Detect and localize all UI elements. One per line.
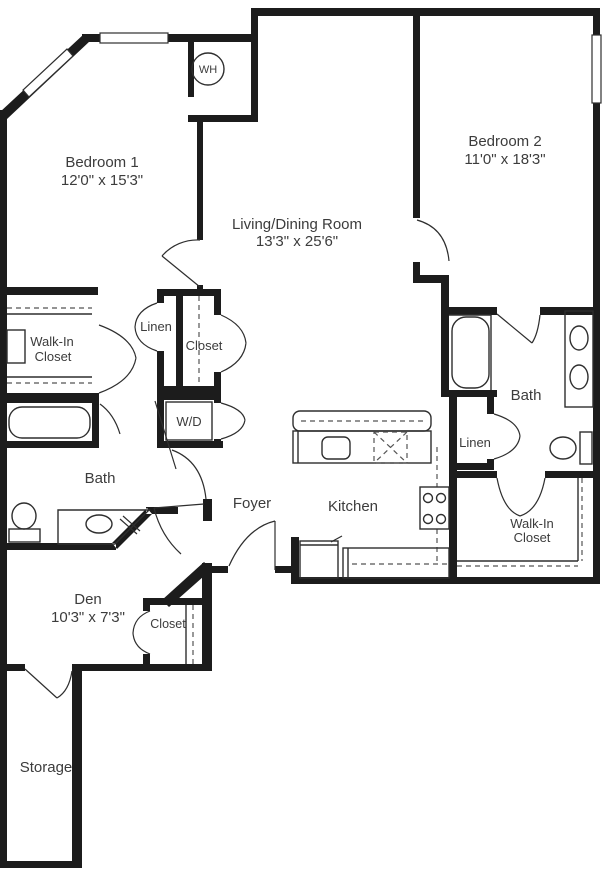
- label-bath1: Bath: [85, 470, 116, 487]
- window-bedroom1-diagonal: [23, 49, 73, 97]
- door-arc-bath1-hall: [100, 404, 120, 434]
- label-walkin2-line2: Closet: [514, 530, 551, 545]
- lower-cabinets: [343, 548, 449, 578]
- dims-living-dining: 13'3" x 25'6": [256, 233, 338, 250]
- label-bedroom2: Bedroom 2: [468, 133, 541, 150]
- dims-den: 10'3" x 7'3": [51, 609, 125, 626]
- label-linen1: Linen: [140, 319, 172, 334]
- vanity-sink-1: [58, 510, 149, 544]
- door-arcs-walkin2: [497, 478, 545, 516]
- dims-bedroom2: 11'0" x 18'3": [464, 151, 545, 168]
- double-vanity-2: [565, 311, 593, 407]
- bathtub-2: [449, 315, 491, 390]
- door-leaf-bath1: [154, 504, 204, 508]
- label-walkin1-line1: Walk-In: [30, 334, 74, 349]
- door-arcs-walkin1: [99, 325, 136, 393]
- door-arcs-wd: [221, 403, 245, 439]
- dims-bedroom1: 12'0" x 15'3": [61, 172, 143, 189]
- window-bedroom1-top: [100, 33, 168, 43]
- den-closet-rod: [186, 605, 193, 664]
- toilet-2: [550, 432, 592, 464]
- door-arcs-closet1: [221, 315, 246, 372]
- door-arc-bedroom1: [162, 240, 200, 256]
- toilet-1: [9, 503, 40, 542]
- stove-icon: [420, 487, 449, 529]
- kitchen-counters: [293, 411, 449, 578]
- label-kitchen: Kitchen: [328, 498, 378, 515]
- label-linen2: Linen: [459, 435, 491, 450]
- label-living-dining: Living/Dining Room: [232, 216, 362, 233]
- label-den: Den: [74, 591, 102, 608]
- bathtub-1: [9, 407, 90, 438]
- label-walkin1-line2: Closet: [35, 349, 72, 364]
- label-closet1: Closet: [186, 338, 223, 353]
- door-arc-entry: [229, 521, 275, 566]
- window-bedroom2-right: [592, 35, 601, 103]
- floorplan-drawing: Bedroom 1 12'0" x 15'3" Bedroom 2 11'0" …: [0, 0, 604, 870]
- door-leaf-bath2: [497, 314, 532, 343]
- door-leaf-storage: [25, 669, 57, 698]
- label-bedroom1: Bedroom 1: [65, 154, 138, 171]
- door-arc-storage: [57, 671, 72, 698]
- floorplan: Bedroom 1 12'0" x 15'3" Bedroom 2 11'0" …: [0, 0, 604, 870]
- door-arc-bath1: [154, 508, 181, 554]
- door-arc-bedroom2: [417, 220, 449, 261]
- door-arc-corridor: [172, 450, 206, 499]
- label-water-heater: WH: [199, 64, 217, 76]
- corner-cabinet: [374, 432, 407, 463]
- door-arcs-linen2: [494, 414, 520, 459]
- kitchen-sink-icon: [322, 437, 350, 459]
- label-den-closet: Closet: [150, 617, 186, 631]
- label-storage: Storage: [20, 759, 73, 776]
- door-leaf-bedroom1: [162, 256, 200, 287]
- door-arc-bath2: [532, 315, 540, 343]
- label-bath2: Bath: [511, 387, 542, 404]
- door-swings: [25, 220, 545, 698]
- refrigerator-icon: [300, 541, 338, 578]
- label-wd: W/D: [176, 414, 201, 429]
- door-arcs-den-closet: [133, 611, 150, 654]
- label-walkin2-line1: Walk-In: [510, 516, 554, 531]
- label-foyer: Foyer: [233, 495, 271, 512]
